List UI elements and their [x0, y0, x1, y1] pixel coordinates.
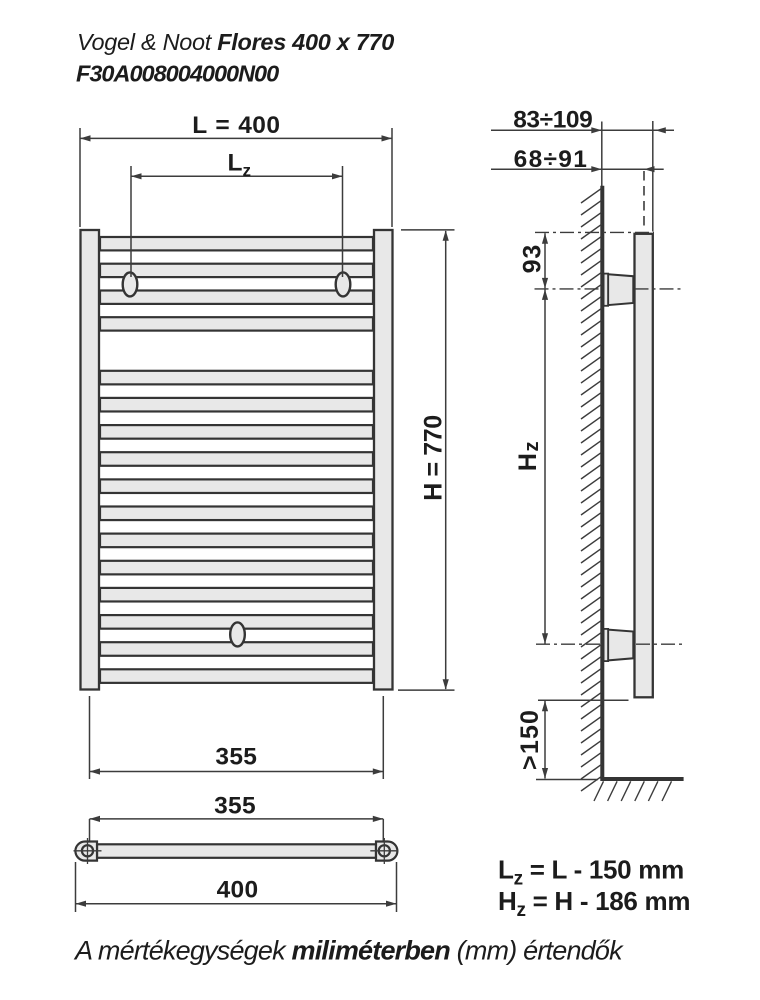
- svg-text:Hz = H - 186 mm: Hz = H - 186 mm: [498, 886, 690, 921]
- svg-text:355: 355: [214, 793, 256, 820]
- svg-text:355: 355: [215, 744, 257, 771]
- svg-text:H = 770: H = 770: [420, 415, 448, 500]
- svg-text:Lz = L - 150 mm: Lz = L - 150 mm: [498, 855, 684, 890]
- svg-text:L = 400: L = 400: [192, 112, 280, 139]
- svg-text:83÷109: 83÷109: [513, 107, 592, 134]
- svg-text:Vogel & Noot Flores 400 x 770: Vogel & Noot Flores 400 x 770: [77, 29, 394, 55]
- svg-text:F30A008004000N00: F30A008004000N00: [76, 61, 279, 87]
- svg-text:>150: >150: [516, 709, 544, 770]
- svg-text:400: 400: [217, 877, 259, 904]
- svg-text:A mértékegységek miliméterben: A mértékegységek miliméterben (mm) érten…: [73, 936, 624, 966]
- svg-text:93: 93: [519, 244, 547, 273]
